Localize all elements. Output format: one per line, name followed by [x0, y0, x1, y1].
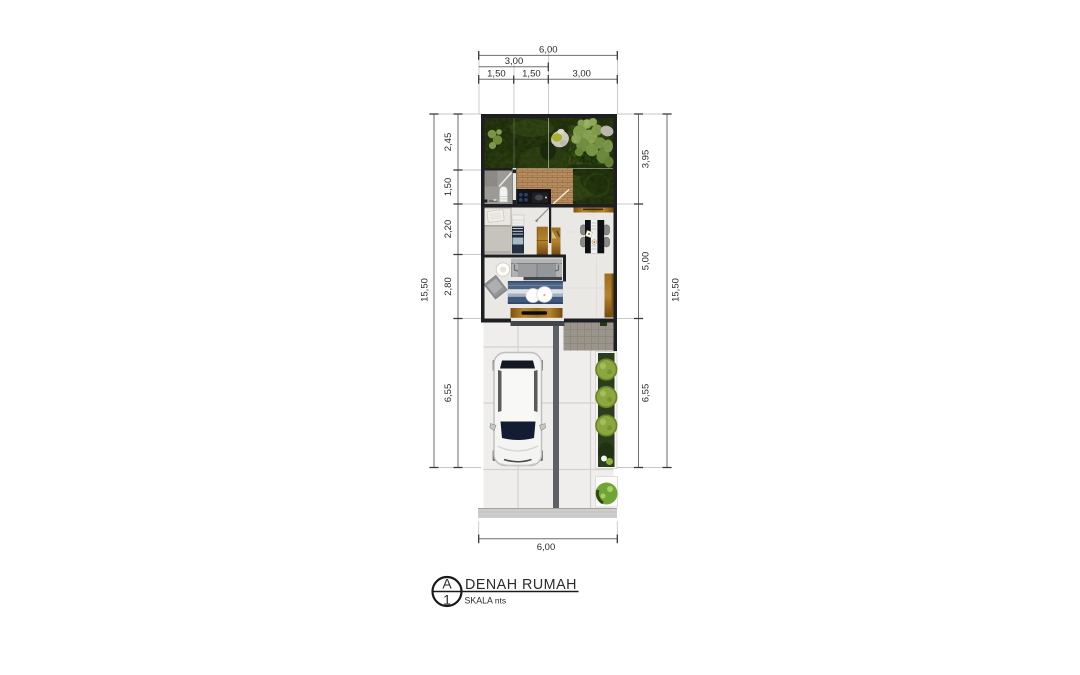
svg-text:15,50: 15,50 [420, 278, 431, 302]
svg-text:2,80: 2,80 [443, 277, 454, 296]
svg-text:DENAH RUMAH: DENAH RUMAH [465, 577, 577, 593]
svg-text:6,00: 6,00 [537, 542, 556, 553]
svg-text:5,00: 5,00 [641, 252, 652, 271]
svg-text:1,50: 1,50 [443, 178, 454, 197]
svg-text:6,00: 6,00 [539, 45, 558, 56]
svg-text:6,55: 6,55 [641, 384, 652, 403]
svg-text:15,50: 15,50 [671, 278, 682, 302]
svg-text:SKALA nts: SKALA nts [465, 596, 507, 606]
svg-text:3,00: 3,00 [572, 68, 591, 79]
svg-text:2,45: 2,45 [443, 133, 454, 152]
svg-text:1,50: 1,50 [522, 68, 541, 79]
svg-text:2,20: 2,20 [443, 220, 454, 239]
svg-text:1: 1 [443, 592, 451, 608]
svg-text:1,50: 1,50 [487, 68, 506, 79]
svg-text:A: A [442, 576, 452, 592]
svg-text:3,00: 3,00 [505, 56, 524, 67]
svg-text:3,95: 3,95 [641, 150, 652, 169]
svg-text:6,55: 6,55 [443, 384, 454, 403]
